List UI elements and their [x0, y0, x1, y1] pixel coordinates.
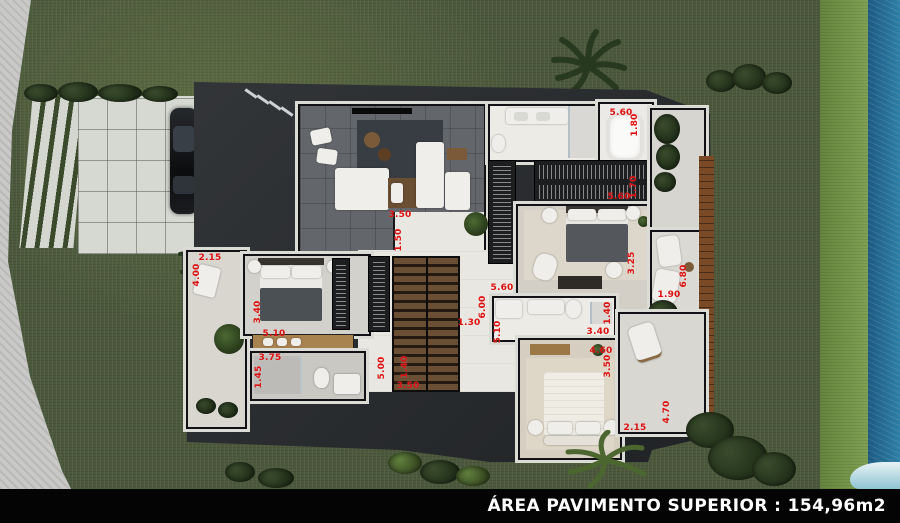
upper-right-terrace — [650, 108, 706, 234]
hedge-bush — [58, 82, 98, 102]
pool-side-lawn-strip — [820, 0, 874, 489]
car-rear-window — [173, 176, 195, 194]
nightstand — [248, 260, 261, 273]
tv — [352, 108, 412, 114]
pillow — [568, 209, 596, 220]
balcony-shrub — [196, 398, 216, 414]
coffee-table — [378, 148, 391, 161]
shrub — [456, 466, 490, 486]
left-balcony — [186, 250, 247, 429]
ottoman — [391, 183, 403, 203]
lounge-chair — [193, 264, 222, 298]
plant — [592, 344, 604, 356]
hedge-bush — [732, 64, 766, 90]
bathtub — [606, 112, 644, 162]
staircase — [392, 256, 460, 392]
lounge-chair — [656, 235, 682, 268]
desk — [558, 276, 602, 289]
potted-plant — [214, 324, 244, 354]
hedge-bush — [762, 72, 792, 94]
left-bathroom — [250, 351, 366, 401]
nightstand — [528, 420, 543, 435]
bed-duvet — [260, 288, 322, 321]
terrace-bush — [656, 144, 680, 170]
terrace-bush — [654, 114, 680, 144]
title-bar: ÁREA PAVIMENTO SUPERIOR : 154,96m2 — [0, 489, 900, 523]
dresser — [530, 344, 570, 355]
sink — [536, 112, 550, 121]
pillow — [292, 266, 321, 278]
sofa — [416, 142, 444, 208]
armchair — [310, 127, 333, 146]
armchair — [316, 148, 338, 166]
palm-tree — [548, 28, 628, 98]
side-table — [684, 262, 694, 272]
headboard — [258, 258, 324, 265]
area-title: ÁREA PAVIMENTO SUPERIOR : 154,96m2 — [488, 496, 887, 516]
balcony-shrub — [218, 402, 238, 418]
coffee-table — [364, 132, 380, 148]
shower — [254, 356, 302, 394]
toilet — [566, 300, 581, 318]
hedge-bush — [142, 86, 178, 102]
hedge-bush — [98, 84, 142, 102]
closet-rack — [534, 160, 652, 206]
towel — [277, 338, 287, 346]
wood-dresser — [252, 334, 354, 351]
hedge-bush — [24, 84, 58, 102]
floor-plan-render: 3.501.502.154.003.405.103.751.455.001.40… — [0, 0, 900, 523]
closet-rack — [332, 258, 350, 330]
sink-counter — [528, 300, 564, 314]
pillow — [598, 209, 626, 220]
bed-duvet — [566, 224, 628, 262]
plant — [638, 216, 649, 227]
car-windshield — [173, 126, 195, 152]
nightstand — [542, 208, 557, 223]
shrub — [225, 462, 255, 482]
toilet — [492, 135, 505, 152]
shrub — [258, 468, 294, 488]
master-bathroom — [488, 104, 604, 162]
chaise — [445, 172, 470, 210]
towel — [291, 338, 301, 346]
shrub — [388, 452, 422, 474]
parked-car — [170, 108, 198, 214]
hall-plant — [464, 212, 488, 236]
toilet — [314, 368, 329, 388]
desk-chair — [606, 262, 622, 278]
sink — [514, 112, 528, 121]
terrace-bush — [654, 172, 676, 192]
guest-bathroom — [492, 296, 616, 342]
bottom-right-balcony — [618, 312, 706, 434]
sofa — [335, 168, 389, 210]
shrub — [420, 460, 460, 484]
closet-rack — [488, 160, 516, 264]
lounge-chair — [627, 321, 663, 364]
pool-water — [868, 0, 900, 489]
palm-tree — [560, 430, 650, 490]
left-bedroom — [243, 254, 371, 336]
shower — [568, 106, 602, 158]
cabinet — [496, 300, 522, 318]
side-cabinet — [447, 148, 467, 160]
vanity-sink — [334, 374, 360, 394]
towel — [263, 338, 273, 346]
shower — [590, 302, 612, 324]
tree-canopy — [752, 452, 796, 486]
lounge-chair — [651, 268, 680, 304]
closet-rack — [368, 256, 390, 332]
pillow — [261, 266, 290, 278]
